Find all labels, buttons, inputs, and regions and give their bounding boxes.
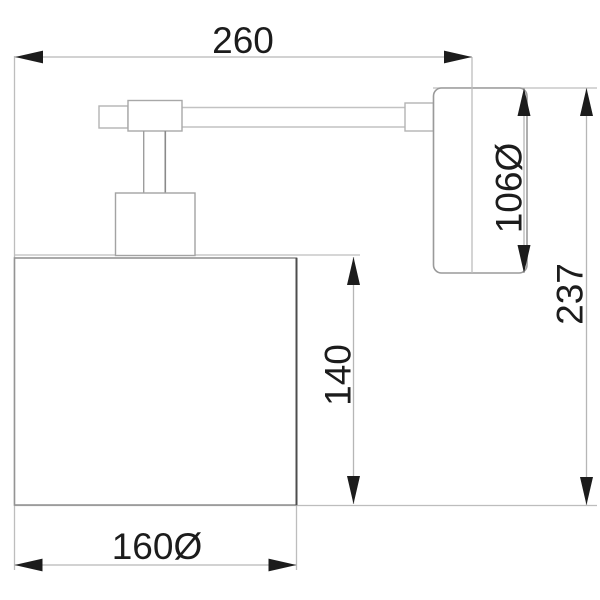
arrow-260-right-icon: [444, 51, 472, 64]
dim-label-total-height: 237: [550, 263, 591, 325]
technical-drawing: 260 106Ø 237 140 160Ø: [0, 0, 600, 600]
arrow-260-left-icon: [15, 51, 43, 64]
shade-outline: [15, 258, 297, 505]
arrow-237-down-icon: [580, 477, 593, 505]
dim-label-arm-projection: 260: [212, 20, 274, 61]
arm-wall-connector: [405, 103, 434, 131]
arrow-160-left-icon: [15, 559, 43, 572]
lamp-shade: [15, 258, 297, 505]
arrow-140-down-icon: [347, 476, 360, 504]
arm-end-cap: [99, 106, 128, 128]
arrow-140-up-icon: [347, 257, 360, 285]
drawing-svg: 260 106Ø 237 140 160Ø: [0, 0, 600, 600]
arrow-237-up-icon: [580, 88, 593, 116]
dim-label-backplate-diameter: 106Ø: [489, 143, 530, 234]
arm-knuckle: [128, 101, 182, 132]
arrow-160-right-icon: [269, 559, 297, 572]
lamp-socket-body: [116, 193, 196, 256]
dim-label-shade-diameter: 160Ø: [112, 526, 203, 567]
dim-label-shade-height: 140: [318, 344, 359, 406]
lamp-arm-assembly: [99, 101, 434, 256]
